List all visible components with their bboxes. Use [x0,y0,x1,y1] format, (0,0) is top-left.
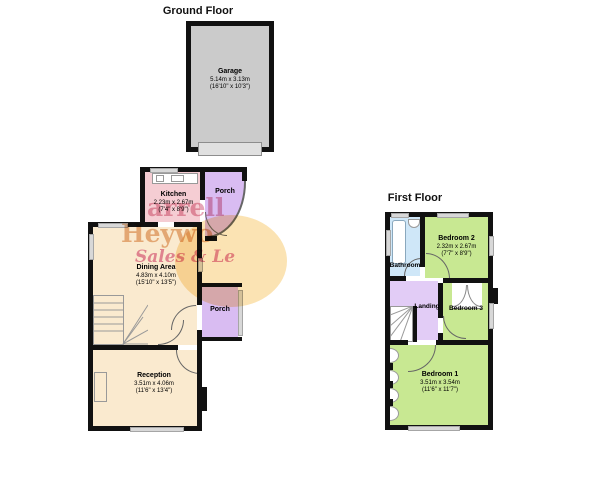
window-dining-left [89,234,94,260]
dining-label: Dining Area 4.83m x 4.10m (15'10" x 13'5… [112,264,200,288]
wall-porch-post-bottom [205,236,217,241]
window-porch2 [238,290,243,336]
ground-floor-title: Ground Floor [128,5,268,17]
window-bedroom2-top [437,213,469,218]
wall-reception-divider [88,345,178,350]
stairs-first [390,306,413,342]
wall-chimney-first [493,288,498,304]
bedroom2-label: Bedroom 2 2.32m x 2.67m (7'7" x 8'9") [426,235,487,259]
wall-porch-post-top [242,167,247,181]
floorplan-canvas: Ground Floor [0,0,600,500]
wall-stairs-right [413,306,417,342]
reception-label: Reception 3.51m x 4.06m (11'6" x 13'4") [104,372,204,396]
kitchen-sink [171,175,184,182]
wall-bed2-bottom [443,278,493,283]
wall-bed1-post-2 [385,381,393,388]
window-bedroom3-right [489,303,494,329]
wall-bed1-top-left [385,340,408,345]
window-kitchen [150,168,178,173]
wall-porch2-top [197,283,242,287]
window-dining-top [98,223,128,228]
wall-bed1-top-right [436,340,493,345]
bedroom3-label: Bedroom 3 [443,305,489,313]
window-bedroom2-right [489,236,494,256]
garage-label: Garage 5.14m x 3.13m (16'10" x 10'3") [188,68,272,92]
garage-door [198,142,262,156]
porch-top-label: Porch [205,188,245,197]
bathroom-label: Bathroom [386,262,424,270]
wall-porch2-bottom [197,337,242,341]
kitchen-label: Kitchen 2.23m x 2.67m (7'4" x 8'9") [145,191,202,215]
wall-bed1-post-3 [385,399,393,406]
stairs-ground [93,295,148,345]
window-bathroom-top [391,213,409,218]
window-reception [130,427,184,432]
wall-bath-bed2-divider [420,212,425,267]
window-bathroom-left [386,230,391,256]
kitchen-hob [156,175,164,182]
first-floor-title: First Floor [355,192,475,204]
bathtub [392,220,406,264]
wall-bathroom-bottom [390,276,406,281]
wall-bed1-post-1 [385,363,393,370]
bedroom1-label: Bedroom 1 3.51m x 3.54m (11'6" x 11'7") [395,371,485,395]
window-bedroom1-bottom [408,426,460,431]
landing-label: Landing [408,303,446,311]
porch-side-label: Porch [202,306,238,315]
wall-dining-top-mid [140,222,158,227]
